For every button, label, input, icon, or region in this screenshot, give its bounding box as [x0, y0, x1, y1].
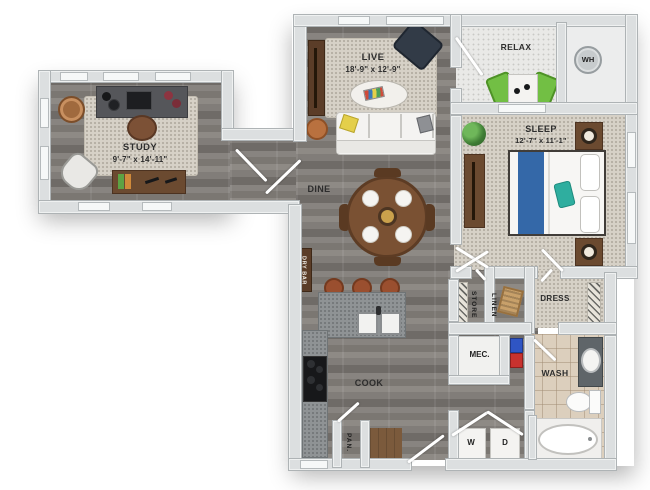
wall-live-left [293, 14, 307, 142]
towel-stack-red [510, 353, 523, 368]
tub-drain [588, 437, 592, 441]
center-bowl [378, 207, 397, 226]
wash-label: WASH [532, 368, 578, 378]
window-sleep-right-2 [627, 192, 636, 244]
window-study-bottom-1 [78, 202, 110, 211]
bed-runner [518, 152, 544, 234]
floor-plan: DRY BAR [0, 0, 650, 490]
window-study-top-2 [103, 72, 139, 81]
desk-dish-2 [172, 99, 181, 108]
burner-4 [316, 384, 323, 391]
wall-wash-outer [604, 335, 617, 470]
vanity-sink [581, 348, 601, 373]
bed-pillow-bottom [580, 196, 600, 233]
media-console-handle [314, 48, 317, 108]
wall-main-left [288, 204, 302, 470]
dine-label: DINE [296, 184, 342, 194]
kitchen-sink-right [380, 312, 401, 335]
dresser-handle [472, 162, 475, 220]
bed-pillow-top [580, 154, 600, 191]
desk-laptop [126, 91, 152, 110]
sleep-dims: 12'-7" x 11'-1" [498, 136, 584, 145]
desk-chair [127, 115, 157, 141]
wall-dine-sleep [450, 115, 462, 245]
wall-tub-stub [528, 415, 537, 460]
mec-label: MEC. [459, 350, 500, 359]
wall-store-left [448, 279, 459, 322]
live-label: LIVE [330, 52, 416, 63]
cook-label: COOK [346, 378, 392, 388]
wall-sleep-bottom-c [560, 266, 638, 279]
wall-pantry-right [360, 420, 370, 468]
place-setting-2 [395, 190, 412, 207]
window-study-top-1 [60, 72, 88, 81]
dryer-label: D [490, 438, 520, 447]
relax-label: RELAX [486, 42, 546, 52]
dress-hanging-rod [587, 282, 601, 326]
window-study-left-1 [40, 98, 49, 128]
window-living-top-2 [386, 16, 444, 25]
burner-1 [307, 360, 315, 368]
patio-table-item-2 [524, 84, 530, 90]
bed-fold-line [548, 152, 550, 234]
window-study-bottom-2 [142, 202, 172, 211]
towel-stack-blue [510, 338, 523, 353]
toilet-tank [589, 390, 601, 414]
desk-record [108, 99, 120, 111]
dining-chair-west [339, 204, 348, 231]
window-sleep-right-1 [627, 132, 636, 168]
burner-2 [316, 366, 323, 373]
bedroom-plant [462, 122, 486, 146]
wall-study-right [221, 70, 234, 132]
dining-chair-east [426, 204, 435, 231]
kitchen-faucet [376, 306, 381, 315]
sleep-label: SLEEP [508, 124, 574, 134]
console-books-orange [125, 174, 131, 189]
study-label: STUDY [90, 142, 190, 153]
place-setting-3 [362, 226, 379, 243]
window-study-top-3 [155, 72, 191, 81]
window-sleep-top [498, 104, 546, 113]
side-basket [58, 96, 85, 123]
desk-dish-1 [164, 91, 173, 100]
burner-3 [307, 376, 315, 384]
wh-label: WH [574, 55, 602, 64]
patio-table-item-1 [514, 88, 520, 94]
wall-pantry-left [332, 420, 342, 468]
window-living-top-1 [338, 16, 370, 25]
live-dims: 18'-9" x 12'-9" [322, 65, 424, 74]
dining-chair-south [374, 257, 401, 266]
pantry-label: PAN. [345, 426, 352, 460]
dining-chair-north [374, 168, 401, 177]
place-setting-1 [362, 190, 379, 207]
place-setting-4 [395, 226, 412, 243]
wall-closets-bottom-b [558, 322, 617, 335]
wall-mec-bottom [448, 375, 510, 385]
window-study-left-2 [40, 146, 49, 180]
floor-ottoman [306, 118, 328, 140]
washer-label: W [456, 438, 486, 447]
wall-study-left [38, 70, 51, 213]
console-books-green [118, 174, 124, 189]
linen-label: LINEN [490, 284, 497, 326]
wall-balcony-wh [556, 22, 567, 112]
study-dims: 9'-7" x 14'-11" [78, 155, 202, 164]
kitchen-sink-left [357, 312, 378, 335]
sofa-back [337, 140, 435, 153]
lamp-bottom [581, 244, 597, 260]
window-kitchen-bottom [300, 460, 328, 469]
dress-label: DRESS [532, 294, 578, 303]
storage-label: STORE [470, 284, 477, 326]
